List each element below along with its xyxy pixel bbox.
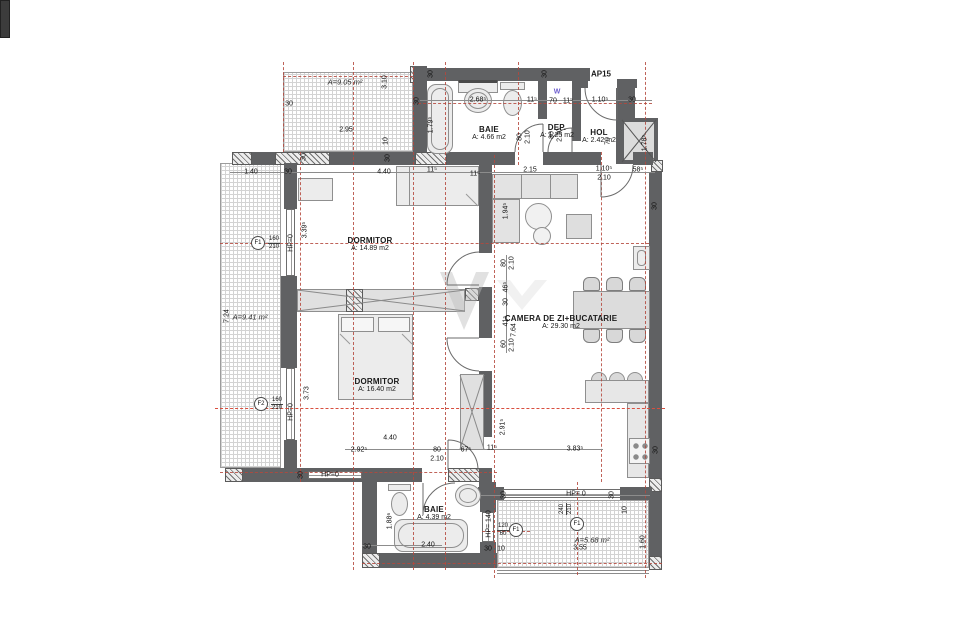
dimension-label: 1.88⁶ [387,513,394,530]
dimension-label: HP= 140 [486,510,493,537]
dining-chair [629,329,646,343]
wall [620,487,652,500]
wall [284,440,297,470]
dimension-label: 2.10 [430,456,444,463]
coffee-table [566,214,592,239]
dimension-label: 30 [285,101,293,108]
dimension-label: 1.10⁵ [596,166,613,173]
door-entry [585,88,617,120]
armchair [525,203,552,230]
dimension-label: 60 [501,340,508,348]
window-marker: F1 [570,517,584,531]
toilet-tank [500,82,525,90]
dimension-label: HP=0 [288,403,295,421]
dimension-label: 30 [503,298,510,306]
room-name: DORMITOR [347,236,392,245]
dimension-line [345,449,603,450]
room-label-baie-1: BAIE A: 4.66 m2 [472,125,506,141]
wall [281,276,297,368]
dimension-label: 2.15 [523,167,537,174]
dimension-label: 3.83⁵ [567,446,584,453]
dimension-label: HP=0 [321,472,339,479]
dimension-label: 41⁵ [503,316,510,327]
window-marker: F2 [254,397,268,411]
dimension-label: 2.40 [421,542,435,549]
window-size-label: 160210 [271,397,283,411]
wall [649,172,662,478]
dimension-label: 1.79⁵ [428,117,435,134]
dining-chair [606,277,623,291]
dimension-label: 2.10 [597,175,611,182]
dimension-label: 1.60 [640,535,647,549]
pillow [378,317,410,332]
pillow [341,317,374,332]
dimension-label: HP= 0 [566,491,586,498]
window-size-label: 160210 [268,236,280,250]
dimension-label: 58⁵ [633,167,644,174]
dimension-label: 30 [628,97,636,104]
dimension-label: 30 [501,491,508,499]
dimension-label: 30 [284,169,292,176]
dimension-label: 30 [414,97,421,105]
terrace-area-label: A=9.41 m² [233,313,268,322]
room-label-baie-2: BAIE A: 4.39 m2 [417,505,451,521]
dining-chair [606,329,623,343]
sofa [492,174,578,199]
room-label-dormitor-2: DORMITOR A: 16.40 m2 [354,377,399,393]
wall-hatched [465,288,479,301]
dimension-line [230,172,655,173]
dimension-label: 1.40 [244,169,258,176]
dimension-label: 10 [383,137,390,145]
wardrobe [297,289,465,312]
dimension-label: 3.10 [382,75,389,89]
wall [479,468,492,487]
dining-chair [629,277,646,291]
dimension-label: 3.55 [573,545,587,552]
axis-line [220,472,497,473]
wall [252,152,275,165]
dimension-label: 70 [605,137,612,145]
dimension-label: 30 [653,446,660,454]
kitchen-sink [633,246,650,270]
axis-line [413,62,414,570]
dimension-label: 70 [549,98,557,105]
window-size-label: 12060 [497,523,509,537]
dimension-label: 3.39⁵ [302,222,309,239]
dining-chair [583,329,600,343]
axis-line [220,243,649,244]
wardrobe [460,374,484,450]
dimension-label: 30 [428,70,435,78]
radiator [0,0,10,38]
dimension-label: 30 [652,202,659,210]
toilet [391,492,408,516]
room-area: A: 29.30 m2 [505,323,617,330]
room-name: DORMITOR [354,377,399,386]
dimension-label: 30 [385,154,392,162]
dimension-label: 30 [484,546,492,553]
dimension-label: 11⁵ [470,171,480,178]
sofa-seam [550,175,551,198]
window-size-label: 240210 [559,503,573,515]
terrace-area-label: A=9.05 m² [328,78,363,87]
dimension-label: 1.94⁵ [503,203,510,220]
cooktop [629,438,650,464]
kitchen-counter [585,380,649,403]
room-label-living: CAMERA DE ZI+BUCATARIE A: 29.30 m2 [505,314,617,330]
toilet-tank [388,484,411,491]
dimension-label: 4.40 [377,169,391,176]
window-marker: F1 [251,236,265,250]
wall-hatched [225,468,243,482]
dimension-label: 67⁵ [461,447,472,454]
window [503,489,621,498]
dimension-label: 2.68⁵ [470,97,487,104]
door-bedroom2 [447,338,479,371]
room-area: A: 4.66 m2 [472,134,506,141]
dimension-label: 3.73 [304,386,311,400]
room-label-dormitor-1: DORMITOR A: 14.89 m2 [347,236,392,252]
axis-line [362,563,662,564]
axis-line [353,62,354,570]
dimension-label: 80 [517,133,524,141]
wall-hatched [448,468,482,482]
dimension-label: 30 [301,153,308,161]
wall [543,152,601,165]
dimension-label: 2.10 [509,338,516,352]
dimension-label: HP=0 [288,234,295,252]
dimension-label: 11⁵ [487,445,497,452]
dimension-label: 2.10 [557,128,564,142]
door-bedroom1 [447,252,479,285]
dimension-label: 11⁵ [527,97,537,104]
axis-line [300,152,301,482]
dimension-label: W [554,89,561,96]
wall [580,79,588,88]
dimension-label: 30 [363,544,371,551]
dimension-label: 80 [549,131,556,139]
dimension-label: 30 [609,491,616,499]
dimension-label: 46⁵ [503,282,510,293]
axis-line [494,155,495,578]
wall [413,66,427,163]
dresser [298,178,333,201]
terrace-area-label: A=5.68 m² [575,536,610,545]
apartment-number: AP15 [591,70,611,79]
dining-chair [583,277,600,291]
dimension-label: 30 [298,471,305,479]
wall-hatched [362,553,380,568]
room-name: BAIE [417,505,451,514]
dimension-label: 2.92⁵ [351,447,368,454]
room-area: A: 4.39 m2 [417,514,451,521]
wall-hatched [232,152,252,165]
window-marker: F1 [509,523,523,537]
sofa-seam [521,175,522,198]
room-area: A: 14.89 m2 [347,245,392,252]
wall [479,152,492,253]
dimension-label: 2.95 [339,127,353,134]
wall-hatched [346,289,363,312]
sink [455,484,481,507]
wall [649,492,662,556]
floor-plan: AP15 BAIE A: 4.66 m2 DEP. A: 1.25 m2 HOL… [0,0,967,642]
dimension-label: 11⁵ [427,167,437,174]
wall [479,287,492,338]
dimension-label: 2.10 [509,256,516,270]
room-name: CAMERA DE ZI+BUCATARIE [505,314,617,323]
wall [633,152,653,165]
dimension-label: 1.78⁵ [642,135,649,152]
axis-line [445,62,446,570]
room-name: BAIE [472,125,506,134]
dimension-label: 80 [501,259,508,267]
dimension-label: 2.91⁵ [500,419,507,436]
terrace-edge-line [497,570,649,571]
room-area: A: 16.40 m2 [354,386,399,393]
dimension-label: 11⁵ [563,98,573,105]
dimension-label: 30 [542,70,549,78]
dimension-label: 10 [622,506,629,514]
room-name: HOL [582,128,616,137]
dimension-label: 2.10 [525,130,532,144]
dimension-label: 10 [497,546,505,553]
dimension-label: 80 [433,447,441,454]
dimension-label: 1.10⁵ [592,97,609,104]
wall [413,68,590,81]
dimension-label: 7.24 [224,309,231,323]
axis-line [518,62,519,165]
dimension-label: 4.40 [383,435,397,442]
wall [330,152,415,165]
terrace-edge-line [497,573,649,574]
dimension-label: 7.64 [511,323,518,337]
